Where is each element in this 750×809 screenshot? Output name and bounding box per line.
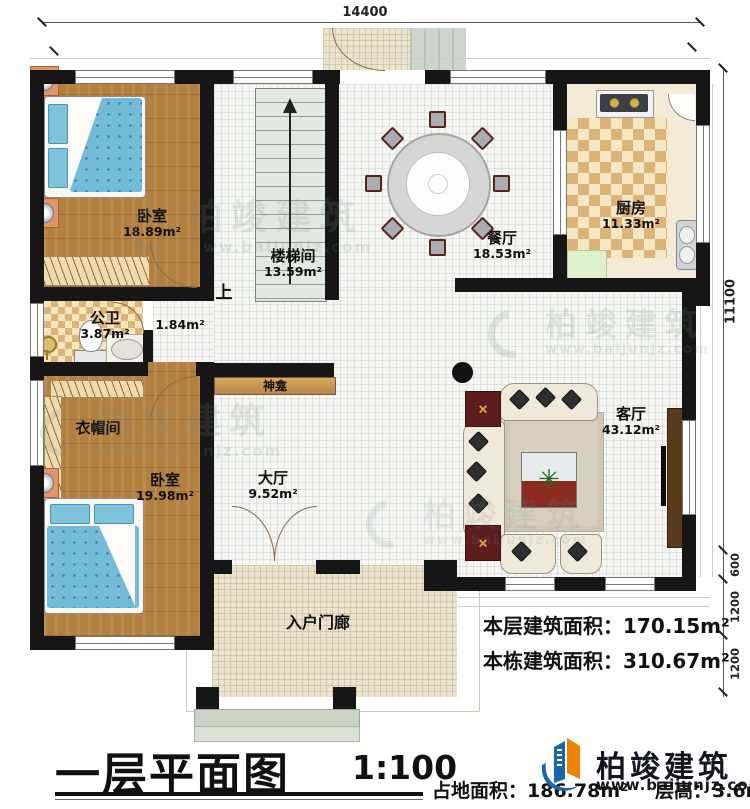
star-icon: +	[472, 398, 494, 420]
window	[75, 636, 175, 650]
room-label-bedroom-bottom: 卧室 19.98m²	[136, 472, 194, 504]
window	[75, 70, 175, 84]
tv-cabinet	[667, 408, 683, 548]
window	[233, 70, 313, 84]
porch-column	[196, 687, 219, 709]
dim-1200a-value: 1200	[728, 588, 742, 626]
dim-right-value: 11100	[724, 277, 739, 327]
porch-step-1	[194, 709, 360, 727]
room-label-dining: 餐厅 18.53m²	[473, 230, 531, 262]
dim-tick	[687, 42, 697, 52]
shrine-label: 神龛	[263, 379, 287, 393]
dining-chair	[429, 111, 446, 128]
wardrobe	[30, 256, 150, 286]
bed-top-pillow	[48, 148, 68, 188]
bed-bottom-pillow	[94, 504, 134, 524]
floor-plan: + + ✳ 神龛 卧室 18.89m² 楼梯间	[0, 0, 750, 809]
side-table: +	[465, 525, 501, 561]
stove-burners-icon	[600, 94, 648, 112]
building-area-stat: 本栋建筑面积：310.67m²	[483, 645, 730, 674]
porch-column	[333, 687, 356, 709]
tv-screen	[661, 446, 666, 506]
window	[696, 125, 710, 243]
wall-segment	[200, 362, 214, 650]
window	[450, 70, 546, 84]
dim-line-top	[42, 22, 700, 23]
title-rule-thick	[55, 792, 423, 796]
bed-bottom-pillow	[50, 504, 90, 524]
dim-top-value: 14400	[330, 5, 400, 20]
room-label-hall: 大厅 9.52m²	[248, 470, 297, 502]
path-line-right2	[700, 292, 701, 577]
dining-chair	[493, 175, 510, 192]
wall-segment	[325, 84, 339, 300]
path-line-right	[712, 84, 713, 577]
bed-top-pillow	[48, 104, 68, 144]
kitchen-tiles	[567, 118, 667, 258]
back-ramp	[410, 28, 466, 70]
room-label-porch: 入户门廊	[286, 614, 350, 632]
room-label-bedroom-top: 卧室 18.89m²	[123, 208, 181, 240]
wall-segment	[30, 70, 44, 650]
sliding-door	[553, 130, 567, 235]
window	[505, 577, 555, 591]
title-rule-thin	[55, 799, 423, 800]
column-dot	[452, 362, 473, 383]
dining-table-center	[428, 174, 448, 194]
cloakroom-rod-top	[50, 380, 144, 398]
dim-1200b-value: 1200	[728, 645, 742, 683]
sink-bowl	[679, 246, 695, 264]
dining-chair	[429, 239, 446, 256]
wall-segment	[457, 577, 696, 591]
shrine-shelf: 神龛	[214, 377, 336, 395]
dining-chair	[365, 175, 382, 192]
side-table: +	[465, 391, 501, 427]
path-line-bottom	[457, 597, 710, 598]
floor-area-stat: 本层建筑面积：170.15m²	[483, 610, 730, 639]
bath-sink-basin	[111, 339, 143, 360]
wall-segment	[553, 84, 567, 130]
wall-segment	[143, 330, 153, 362]
stairs-up-arrowhead-icon	[283, 98, 297, 113]
wall-segment	[455, 278, 710, 292]
stairs-up-label: 上	[216, 284, 233, 304]
dim-tick	[49, 46, 59, 56]
path-line-bottom2	[457, 606, 710, 607]
wall-segment	[316, 560, 360, 574]
star-icon: +	[472, 532, 494, 554]
bed-top-sheet-fold	[70, 98, 102, 190]
room-label-cloakroom: 衣帽间	[75, 420, 120, 437]
room-label-kitchen: 厨房 11.33m²	[602, 200, 660, 232]
room-label-stairwell: 楼梯间 13.59m²	[264, 248, 322, 280]
wall-segment	[424, 560, 457, 591]
wall-segment	[30, 287, 214, 301]
plant-icon: ✳	[538, 467, 560, 493]
window	[605, 577, 655, 591]
coffee-table: ✳	[521, 452, 577, 508]
sink-bowl	[679, 226, 695, 244]
window	[30, 380, 44, 466]
dim-line-right	[723, 70, 724, 697]
wall-segment	[214, 560, 232, 574]
window	[682, 420, 696, 515]
room-label-living: 客厅 43.12m²	[602, 406, 660, 438]
brand-url: www.baijunjz.com	[596, 776, 750, 794]
wall-segment	[214, 363, 334, 377]
dim-600-value: 600	[728, 546, 742, 584]
wall-segment	[200, 70, 214, 300]
room-label-bathroom: 公卫 3.87m²	[80, 310, 129, 342]
wall-segment	[30, 362, 148, 376]
window	[30, 303, 44, 357]
shower-stem	[46, 350, 48, 360]
bed-bottom-sheet-fold	[99, 526, 135, 606]
brand-logo-icon	[538, 733, 592, 795]
room-label-corridor: 1.84m²	[155, 318, 204, 332]
